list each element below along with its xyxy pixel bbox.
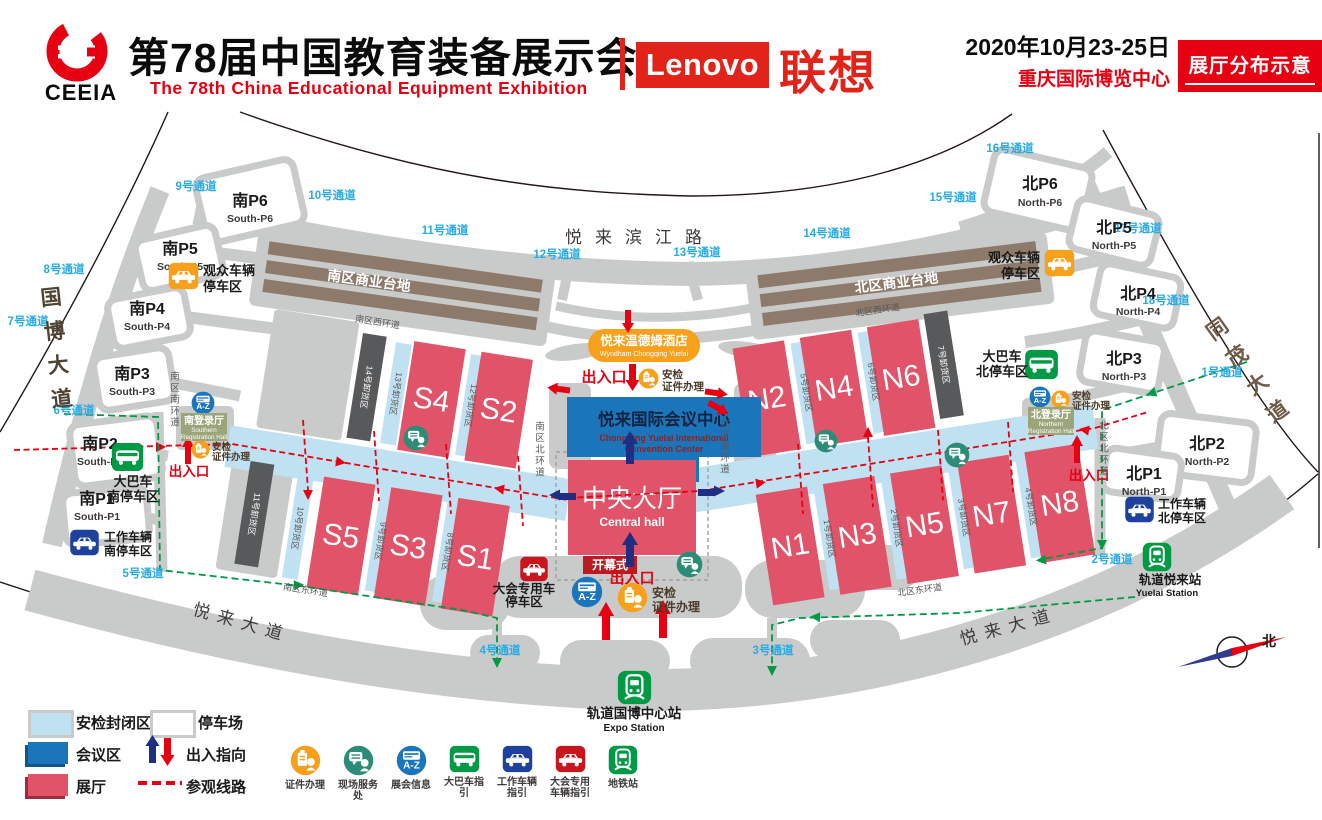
legend-icon-dedicated-vehicle: 大会专用 车辆指引 xyxy=(548,745,592,803)
legend-icon-badge: 证件办理 xyxy=(283,745,327,803)
legend-label-conference: 会议区 xyxy=(76,744,121,765)
event-date: 2020年10月23-25日 xyxy=(930,28,1170,62)
hall-label-s3: S3 xyxy=(387,528,428,566)
svg-text:停车区: 停车区 xyxy=(203,279,242,294)
parking-north-p3-en: North-P3 xyxy=(1102,371,1146,383)
hall-label-n7: N7 xyxy=(970,495,1013,534)
channel-9: 9号通道 xyxy=(176,179,217,193)
legend-label-direction: 出入指向 xyxy=(186,744,246,765)
az-icon-text: A-Z xyxy=(1034,396,1047,405)
svg-text:大会专用车: 大会专用车 xyxy=(493,581,556,596)
svg-text:Yuelai Station: Yuelai Station xyxy=(1136,588,1198,599)
north-entrance-cluster: 出入口 安检 证件办理 xyxy=(581,368,704,393)
svg-text:观众车辆: 观众车辆 xyxy=(203,263,255,278)
hall-label-n5: N5 xyxy=(903,506,946,545)
lenovo-logo-cn: 联想 xyxy=(779,34,877,103)
convention-name-en1: Chongqing Yuelai International xyxy=(599,433,728,443)
security-label: 安检 xyxy=(662,368,683,381)
channel-2: 2号通道 xyxy=(1092,552,1133,566)
parking-south-p4-en: South-P4 xyxy=(124,321,170,333)
channel-10: 10号通道 xyxy=(308,188,356,202)
svg-text:南停车区: 南停车区 xyxy=(107,489,159,504)
work-vehicle-parking-north: 工作车辆 北停车区 xyxy=(1125,496,1206,525)
hall-label-n3: N3 xyxy=(836,517,879,556)
ceeia-logo-icon xyxy=(46,20,108,82)
north-registration-en1: Northern xyxy=(1039,421,1064,428)
security-label2: 证件办理 xyxy=(1072,400,1111,412)
parking-south-p6-en: South-P6 xyxy=(227,213,273,225)
road-s-north: 南区北环道 xyxy=(531,421,545,479)
parking-south-p6: 南P6 xyxy=(232,191,268,210)
south-registration-cn: 南登录厅 xyxy=(184,414,224,427)
event-info: 2020年10月23-25日 重庆国际博览中心 xyxy=(930,28,1170,91)
svg-text:工作车辆: 工作车辆 xyxy=(104,529,152,544)
north-registration-cn: 北登录厅 xyxy=(1031,408,1071,421)
parking-north-p5: 北P5 xyxy=(1096,219,1132,237)
legend-icon-bus: 大巴车指引 xyxy=(442,745,486,803)
channel-13: 13号通道 xyxy=(673,245,721,259)
channel-11: 11号通道 xyxy=(422,223,469,237)
entrance-west: 出入口 xyxy=(169,463,210,479)
central-hall-cn: 中央大厅 xyxy=(582,485,682,513)
south-registration-en1: Southern xyxy=(191,427,217,434)
parking-north-p6: 北P6 xyxy=(1022,175,1058,193)
svg-text:大巴车: 大巴车 xyxy=(113,474,152,489)
legend-label-secure-zone: 安检封闭区 xyxy=(76,712,151,733)
visitor-parking-north: 观众车辆 停车区 xyxy=(988,250,1074,281)
svg-text:南停车区: 南停车区 xyxy=(104,543,152,558)
compass-north-label: 北 xyxy=(1262,633,1276,649)
legend-icon-service: 现场服务处 xyxy=(336,745,380,803)
road-binjiang: 悦来滨江路 xyxy=(565,228,715,247)
channel-16: 16号通道 xyxy=(986,141,1034,155)
svg-text:工作车辆: 工作车辆 xyxy=(1158,496,1206,511)
bus-parking-north: 大巴车 北停车区 xyxy=(976,349,1058,379)
security-label2: 证件办理 xyxy=(652,599,700,614)
legend-icon-metro: 地铁站 xyxy=(601,745,645,803)
venue-map: 南区商业台地 北区商业台地 S4 S2 S5 S3 S1 14号卸货区 13号卸… xyxy=(0,0,1322,820)
legend-swatch-hall xyxy=(28,774,68,796)
parking-south-p4: 南P4 xyxy=(129,299,165,318)
parking-north-p4: 北P4 xyxy=(1120,285,1156,303)
parking-north-p1: 北P1 xyxy=(1126,465,1162,483)
parking-south-p5: 南P5 xyxy=(162,239,198,258)
exhibition-map-page: 南区商业台地 北区商业台地 S4 S2 S5 S3 S1 14号卸货区 13号卸… xyxy=(0,0,1322,820)
legend-route-line xyxy=(138,781,182,785)
svg-text:轨道悦来站: 轨道悦来站 xyxy=(1139,572,1202,587)
parking-north-p3: 北P3 xyxy=(1106,350,1142,368)
svg-text:北停车区: 北停车区 xyxy=(976,364,1028,379)
hall-label-s2: S2 xyxy=(478,391,519,429)
hall-label-n4: N4 xyxy=(813,369,856,408)
legend-icon-work-vehicle: 工作车辆指引 xyxy=(495,745,539,803)
badge-underline xyxy=(1185,83,1315,85)
wyndham-hotel: 悦来温德姆酒店 Wyndham Chongqing Yuelai xyxy=(588,329,700,362)
security-label: 安检 xyxy=(652,585,676,600)
south-registration-en2: Registration Hall xyxy=(181,434,227,441)
road-n-south: 北区南环道 xyxy=(716,418,730,476)
legend-swatch-conference xyxy=(28,742,68,764)
road-s-south: 南区南环道 xyxy=(166,371,180,429)
svg-text:Expo Station: Expo Station xyxy=(603,723,664,734)
page-title: 第78届中国教育装备展示会 xyxy=(128,24,638,84)
hall-label-s4: S4 xyxy=(411,381,452,419)
parking-north-p2: 北P2 xyxy=(1189,435,1225,453)
compass: 北 xyxy=(1178,633,1286,667)
svg-text:轨道国博中心站: 轨道国博中心站 xyxy=(587,705,682,721)
channel-15: 15号通道 xyxy=(929,190,977,204)
convention-name-cn: 悦来国际会议中心 xyxy=(598,409,731,429)
hall-label-n6: N6 xyxy=(880,359,923,398)
hall-label-n1: N1 xyxy=(769,527,812,566)
parking-south-p3: 南P3 xyxy=(114,364,150,383)
hall-label-s1: S1 xyxy=(455,539,496,577)
convention-name-en2: Convention Center xyxy=(625,444,704,454)
svg-text:北停车区: 北停车区 xyxy=(1158,510,1206,525)
hotel-name-en: Wyndham Chongqing Yuelai xyxy=(600,351,689,358)
svg-text:停车区: 停车区 xyxy=(505,594,543,609)
security-label2: 证件办理 xyxy=(662,380,704,393)
hall-label-s5: S5 xyxy=(320,517,361,555)
parking-north-p4-en: North-P4 xyxy=(1116,306,1160,318)
parking-north-p5-en: North-P5 xyxy=(1092,240,1136,252)
event-venue: 重庆国际博览中心 xyxy=(930,64,1170,91)
road-n-north: 北区北环道 xyxy=(1095,420,1109,478)
channel-5: 5号通道 xyxy=(123,566,164,580)
legend-label-hall: 展厅 xyxy=(76,776,106,797)
security-label2: 证件办理 xyxy=(212,451,251,463)
legend-icons-row: 证件办理 现场服务处 A-Z 展会信息 大巴车指引 工作车辆指引 大会专用 车辆… xyxy=(283,745,645,803)
header-divider xyxy=(620,38,625,90)
lenovo-logo: Lenovo xyxy=(636,42,769,88)
svg-text:停车区: 停车区 xyxy=(1001,266,1040,281)
entrance-top: 出入口 xyxy=(581,368,626,386)
svg-text:大巴车: 大巴车 xyxy=(982,349,1021,364)
parking-south-p3-en: South-P3 xyxy=(109,386,155,398)
az-icon-text: A-Z xyxy=(578,591,596,603)
hall-label-n8: N8 xyxy=(1038,484,1081,523)
legend-direction-arrows xyxy=(142,734,182,773)
north-registration-en2: Registration Hall xyxy=(1028,428,1074,435)
map-type-badge: 展厅分布示意 xyxy=(1178,40,1322,92)
parking-south-p1-en: South-P1 xyxy=(74,511,120,523)
channel-8: 8号通道 xyxy=(44,262,85,276)
legend-icon-info: A-Z 展会信息 xyxy=(389,745,433,803)
channel-4: 4号通道 xyxy=(480,643,521,657)
channel-12: 12号通道 xyxy=(533,247,581,261)
channel-14: 14号通道 xyxy=(803,226,851,240)
hotel-name-cn: 悦来温德姆酒店 xyxy=(600,333,688,348)
ceeia-logo-text: CEEIA xyxy=(36,80,126,106)
legend-label-parking: 停车场 xyxy=(198,712,243,733)
channel-3: 3号通道 xyxy=(753,643,794,657)
az-icon-text: A-Z xyxy=(196,402,209,411)
central-hall-en: Central hall xyxy=(599,515,664,529)
parking-north-p2-en: North-P2 xyxy=(1185,456,1229,468)
svg-text:A-Z: A-Z xyxy=(403,760,420,771)
legend-swatch-secure-zone xyxy=(28,710,74,738)
svg-text:观众车辆: 观众车辆 xyxy=(988,250,1040,265)
parking-north-p6-en: North-P6 xyxy=(1018,197,1062,209)
legend-label-route: 参观线路 xyxy=(186,776,246,797)
page-subtitle: The 78th China Educational Equipment Exh… xyxy=(150,78,588,99)
work-vehicle-parking-south: 工作车辆 南停车区 xyxy=(70,529,152,558)
